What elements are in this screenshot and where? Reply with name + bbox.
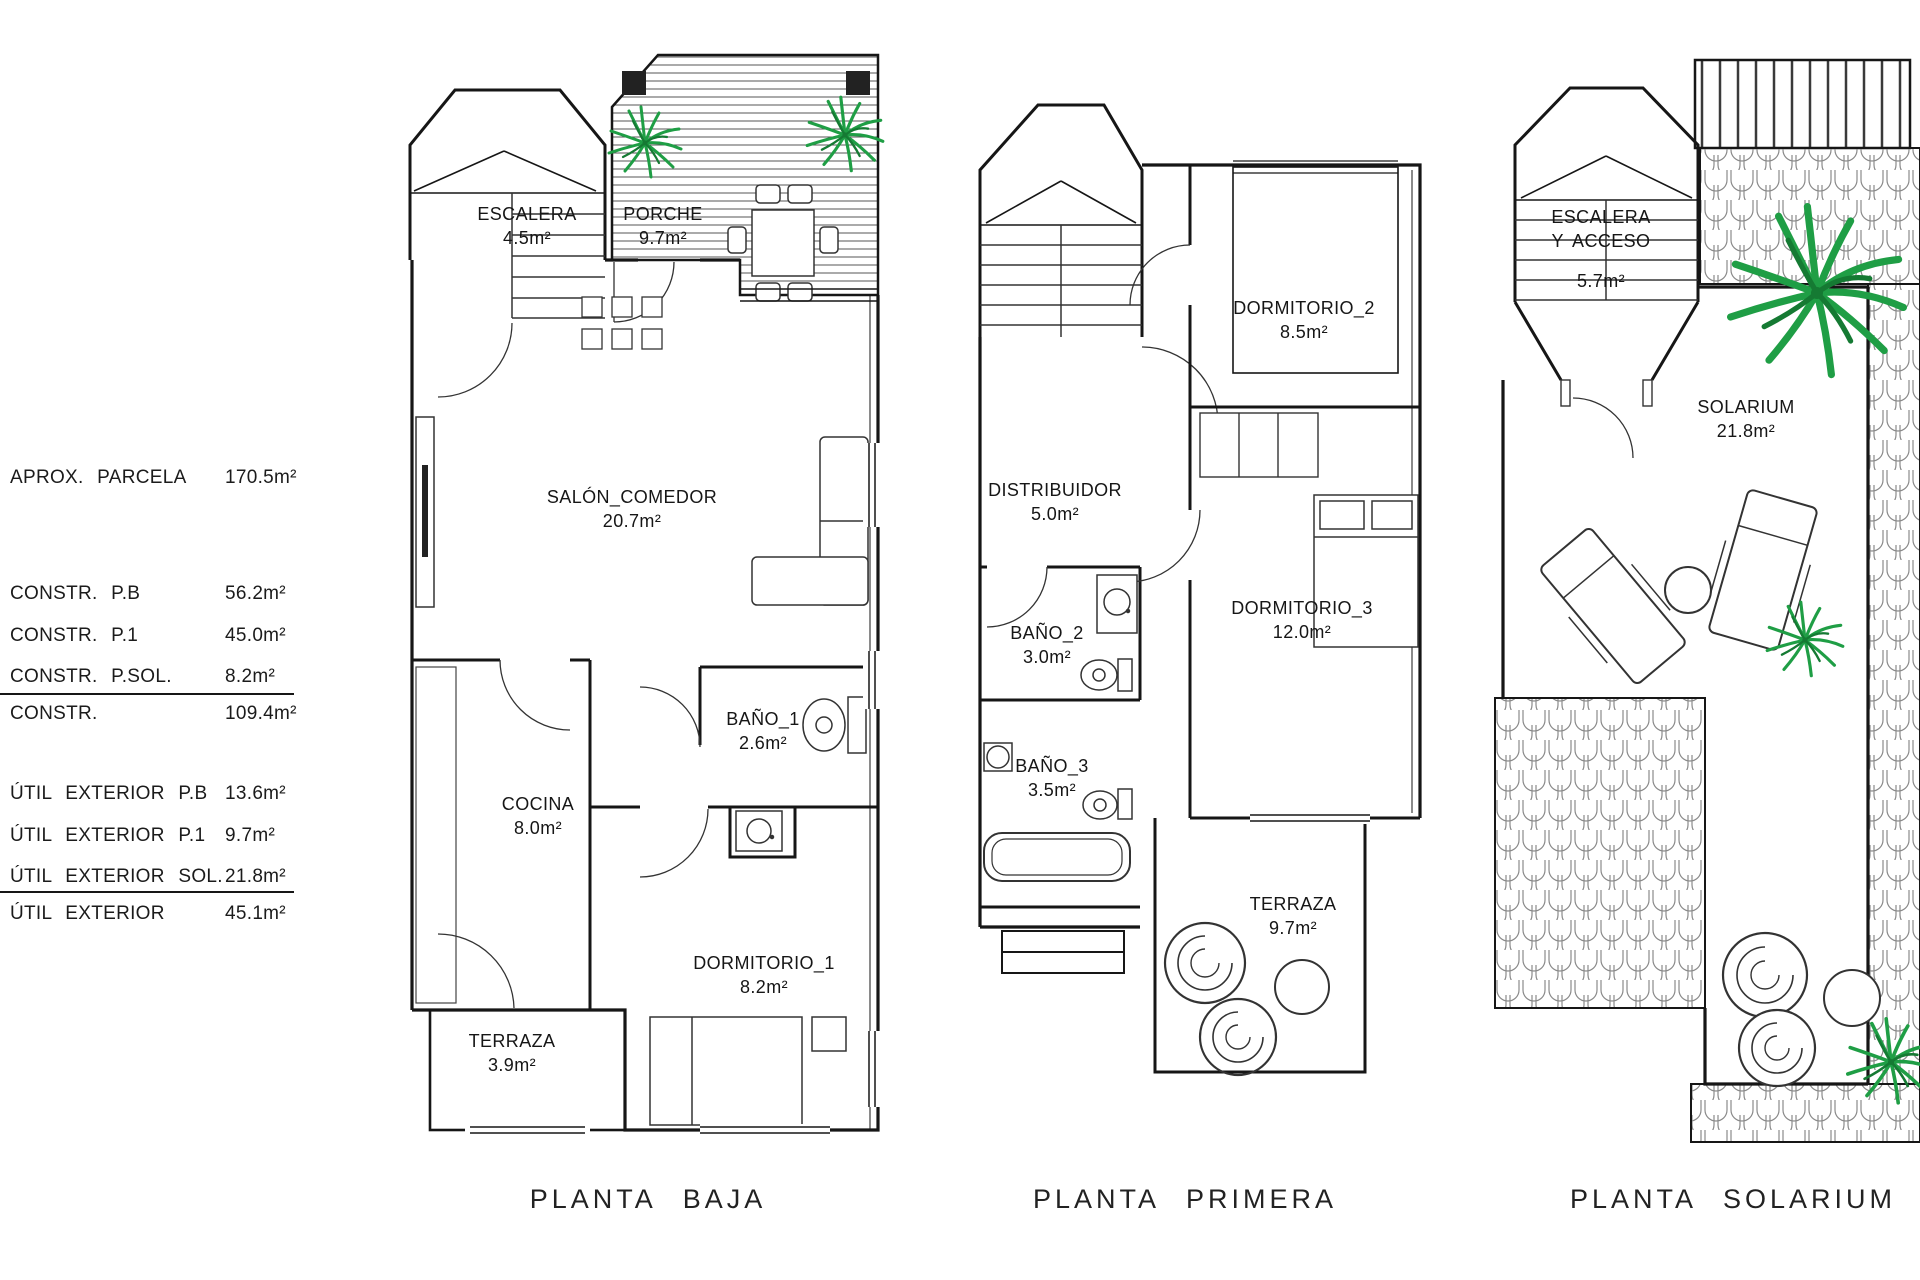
legend-value: 170.5m² xyxy=(225,467,297,489)
room-area: 8.2m² xyxy=(693,976,835,1000)
bathtub-icon xyxy=(984,833,1130,881)
room-area: 9.7m² xyxy=(1250,917,1337,941)
room-area: 21.8m² xyxy=(1697,420,1794,444)
legend-label: ÚTIL EXTERIOR xyxy=(10,903,165,925)
porch-post xyxy=(846,71,870,95)
room-label-bano1: BAÑO_1 2.6m² xyxy=(726,708,799,756)
sofa-icon xyxy=(752,437,868,605)
room-name: TERRAZA xyxy=(469,1030,556,1054)
room-label-distribuidor: DISTRIBUIDOR 5.0m² xyxy=(988,479,1122,527)
window-box xyxy=(1002,931,1124,973)
round-chair-icon xyxy=(1200,999,1276,1075)
room-label-escalera-acceso: ESCALERA Y ACCESO 5.7m² xyxy=(1551,206,1650,293)
door-arc xyxy=(640,687,700,747)
room-label-escalera: ESCALERA 4.5m² xyxy=(477,203,576,251)
room-area: 8.5m² xyxy=(1233,321,1375,345)
floor-title-planta-baja: PLANTA BAJA xyxy=(530,1184,767,1215)
room-name: SALÓN_COMEDOR xyxy=(547,486,717,510)
roof-tiles xyxy=(1691,1084,1920,1142)
room-name: PORCHE xyxy=(623,203,702,227)
toilet-icon xyxy=(803,697,866,753)
sink-icon xyxy=(984,743,1012,771)
room-area: 5.7m² xyxy=(1551,270,1650,294)
room-name: TERRAZA xyxy=(1250,893,1337,917)
room-area: 9.7m² xyxy=(623,227,702,251)
room-area: 3.0m² xyxy=(1010,646,1083,670)
legend-value: 8.2m² xyxy=(225,666,275,688)
room-name: COCINA xyxy=(502,793,574,817)
room-area: 8.0m² xyxy=(502,817,574,841)
room-label-dormitorio2: DORMITORIO_2 8.5m² xyxy=(1233,297,1375,345)
sink-icon xyxy=(1097,575,1137,633)
room-label-terraza-p1: TERRAZA 9.7m² xyxy=(1250,893,1337,941)
salon-chairs xyxy=(582,297,662,349)
room-area: 5.0m² xyxy=(988,503,1122,527)
legend-label: APROX. PARCELA xyxy=(10,467,187,489)
round-table-icon xyxy=(1665,567,1711,613)
room-area: 3.9m² xyxy=(469,1054,556,1078)
legend-label: ÚTIL EXTERIOR SOL. xyxy=(10,866,223,888)
room-label-terraza-pb: TERRAZA 3.9m² xyxy=(469,1030,556,1078)
legend-value: 56.2m² xyxy=(225,583,286,605)
room-area: 4.5m² xyxy=(477,227,576,251)
room-name: ESCALERA xyxy=(477,203,576,227)
roof-tiles xyxy=(1495,698,1705,1008)
legend-divider xyxy=(0,693,294,695)
room-name: DORMITORIO_2 xyxy=(1233,297,1375,321)
door-arc xyxy=(1130,245,1190,305)
legend-label: CONSTR. xyxy=(10,703,98,725)
stairs xyxy=(980,225,1218,423)
toilet-icon xyxy=(1081,659,1132,691)
room-name: ESCALERA xyxy=(1551,206,1650,230)
sun-lounger-icon xyxy=(1533,521,1694,690)
door-arc xyxy=(500,660,570,730)
room-name: BAÑO_2 xyxy=(1010,622,1083,646)
room-label-solarium: SOLARIUM 21.8m² xyxy=(1697,396,1794,444)
room-label-bano3: BAÑO_3 3.5m² xyxy=(1015,755,1088,803)
round-table-icon xyxy=(1275,960,1329,1014)
sun-lounger-icon xyxy=(1700,487,1825,654)
legend-value: 13.6m² xyxy=(225,783,286,805)
round-chair-icon xyxy=(1165,923,1245,1003)
room-name: BAÑO_3 xyxy=(1015,755,1088,779)
legend-row: ÚTIL EXTERIOR SOL. 21.8m² xyxy=(10,866,310,890)
room-label-bano2: BAÑO_2 3.0m² xyxy=(1010,622,1083,670)
legend-value: 45.0m² xyxy=(225,625,286,647)
room-name: DISTRIBUIDOR xyxy=(988,479,1122,503)
room-area: 20.7m² xyxy=(547,510,717,534)
legend-value: 109.4m² xyxy=(225,703,297,725)
legend-row: APROX. PARCELA 170.5m² xyxy=(10,467,310,491)
room-label-porche: PORCHE 9.7m² xyxy=(623,203,702,251)
bed-icon xyxy=(650,1017,846,1125)
legend-label: ÚTIL EXTERIOR P.B xyxy=(10,783,207,805)
tower-door xyxy=(1561,380,1652,458)
room-area: 2.6m² xyxy=(726,732,799,756)
room-name: BAÑO_1 xyxy=(726,708,799,732)
sink-icon xyxy=(736,811,782,851)
roof-tiles xyxy=(1868,284,1920,1084)
legend-label: ÚTIL EXTERIOR P.1 xyxy=(10,825,205,847)
legend-row: ÚTIL EXTERIOR P.B 13.6m² xyxy=(10,783,310,807)
door-arc xyxy=(640,809,708,877)
plan-planta-primera xyxy=(950,75,1440,1085)
legend-label: CONSTR. P.1 xyxy=(10,625,138,647)
legend-row: CONSTR. P.B 56.2m² xyxy=(10,583,310,607)
terrace-walls xyxy=(1155,818,1365,1072)
room-label-dormitorio3: DORMITORIO_3 12.0m² xyxy=(1231,597,1373,645)
room-name: SOLARIUM xyxy=(1697,396,1794,420)
round-chair-icon xyxy=(1723,933,1807,1017)
legend-divider xyxy=(0,891,294,893)
room-label-cocina: COCINA 8.0m² xyxy=(502,793,574,841)
room-label-dormitorio1: DORMITORIO_1 8.2m² xyxy=(693,952,835,1000)
kitchen-counter xyxy=(416,667,456,1003)
round-table-icon xyxy=(1824,970,1880,1026)
legend-row: ÚTIL EXTERIOR 45.1m² xyxy=(10,903,310,927)
bathroom1-walls xyxy=(590,667,878,857)
legend-row: CONSTR. 109.4m² xyxy=(10,703,310,727)
legend-row: CONSTR. P.SOL. 8.2m² xyxy=(10,666,310,690)
room-area: 12.0m² xyxy=(1231,621,1373,645)
door-arc xyxy=(438,934,514,1008)
room-label-salon: SALÓN_COMEDOR 20.7m² xyxy=(547,486,717,534)
outer-walls xyxy=(412,260,878,1130)
room-name: DORMITORIO_1 xyxy=(693,952,835,976)
pergola xyxy=(1695,60,1910,148)
legend-label: CONSTR. P.B xyxy=(10,583,140,605)
legend-value: 45.1m² xyxy=(225,903,286,925)
wardrobe-icon xyxy=(1200,413,1318,477)
legend-label: CONSTR. P.SOL. xyxy=(10,666,172,688)
room-area: 3.5m² xyxy=(1015,779,1088,803)
legend-value: 21.8m² xyxy=(225,866,286,888)
room-name: Y ACCESO xyxy=(1551,230,1650,254)
legend-row: ÚTIL EXTERIOR P.1 9.7m² xyxy=(10,825,310,849)
round-chair-icon xyxy=(1739,1010,1815,1086)
tv-unit-icon xyxy=(416,417,434,607)
floor-plan-sheet: APROX. PARCELA 170.5m² CONSTR. P.B 56.2m… xyxy=(0,0,1920,1280)
door-arc xyxy=(987,567,1047,627)
legend-value: 9.7m² xyxy=(225,825,275,847)
floor-title-planta-solarium: PLANTA SOLARIUM xyxy=(1570,1184,1896,1215)
room-name: DORMITORIO_3 xyxy=(1231,597,1373,621)
window-gap xyxy=(1250,812,1370,824)
toilet-icon xyxy=(1083,789,1132,819)
floor-title-planta-primera: PLANTA PRIMERA xyxy=(1033,1184,1337,1215)
porch-post xyxy=(622,71,646,95)
legend-row: CONSTR. P.1 45.0m² xyxy=(10,625,310,649)
